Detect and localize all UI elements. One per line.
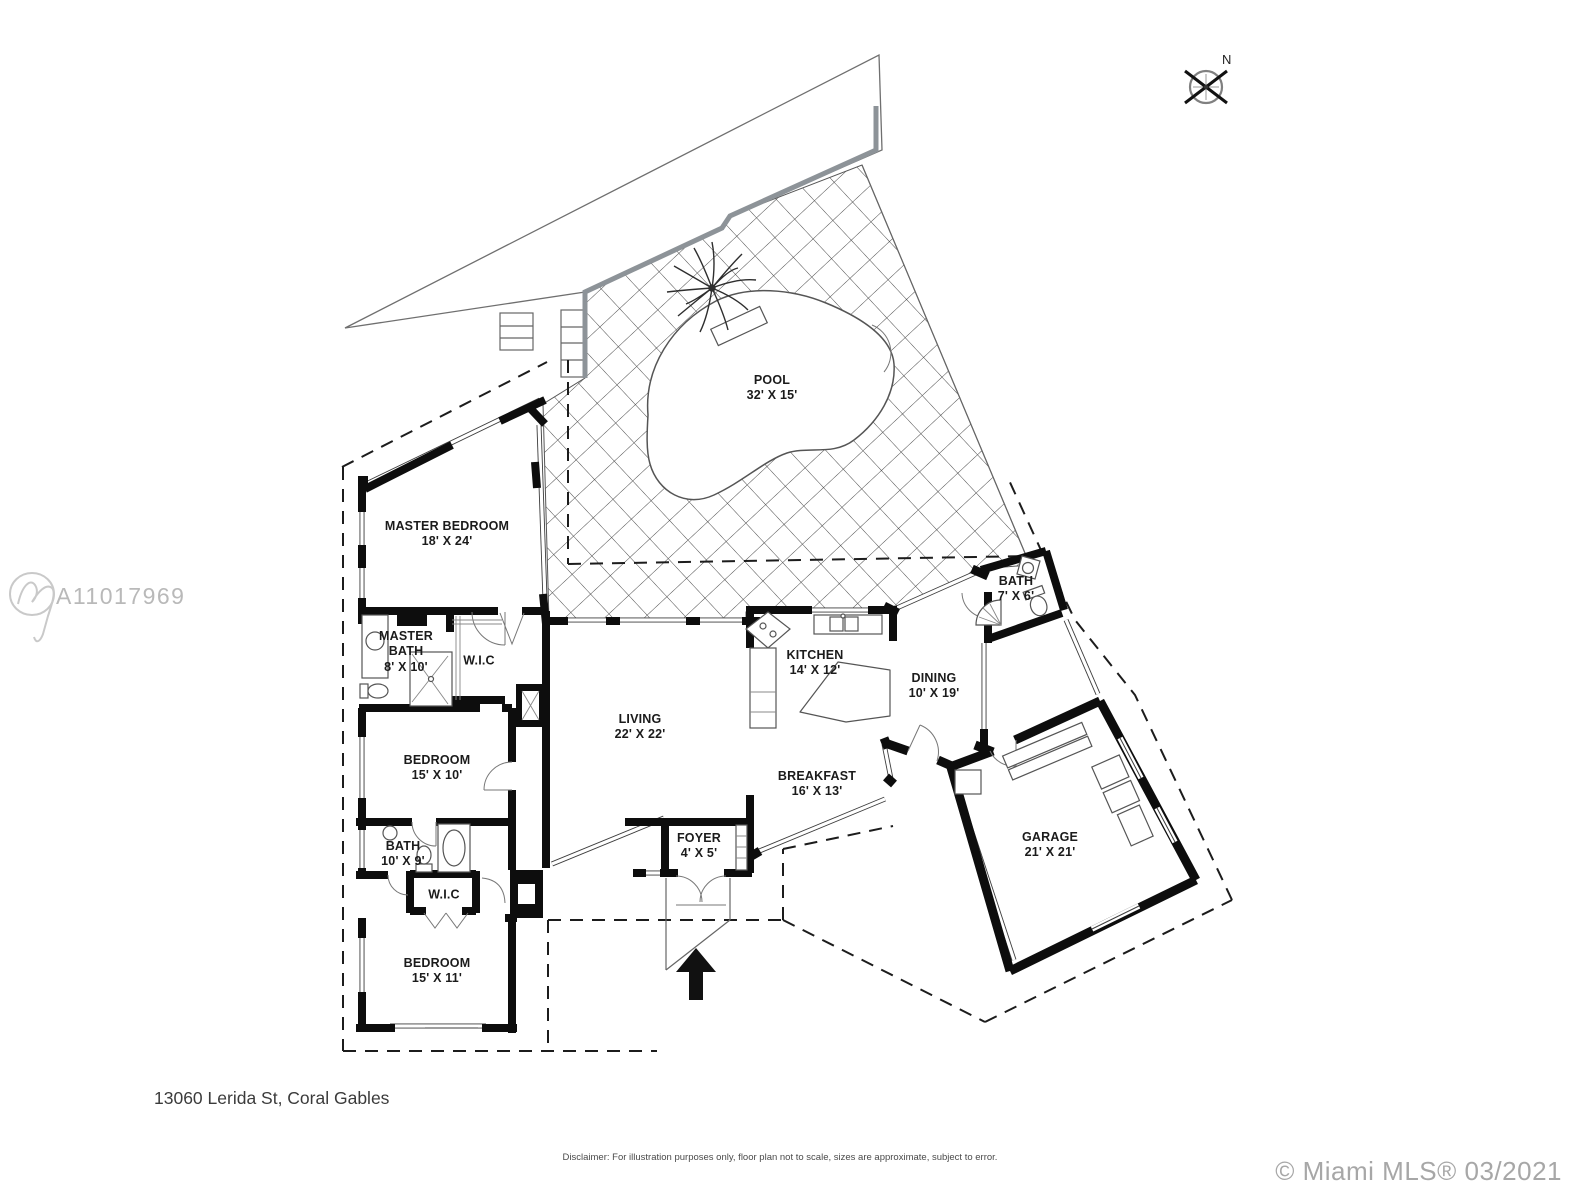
room-name: BEDROOM (404, 753, 471, 768)
room-name: W.I.C (463, 653, 495, 668)
room-name: KITCHEN (787, 648, 844, 663)
room-dims: 14' X 12' (787, 663, 844, 678)
room-name: BATH (381, 839, 425, 854)
room-label-living: LIVING22' X 22' (615, 712, 666, 743)
room-label-bedroom-mid: BEDROOM15' X 10' (404, 753, 471, 784)
room-dims: 10' X 19' (909, 686, 960, 701)
room-label-master-bedroom: MASTER BEDROOM18' X 24' (385, 519, 509, 550)
room-label-bath-hall: BATH10' X 9' (381, 839, 425, 870)
room-label-dining: DINING10' X 19' (909, 671, 960, 702)
mls-watermark-id: A11017969 (56, 583, 185, 610)
compass-north-label: N (1222, 52, 1231, 67)
room-dims: 7' X 6' (998, 589, 1035, 604)
room-label-foyer: FOYER4' X 5' (677, 831, 721, 862)
room-name: MASTER BEDROOM (385, 519, 509, 534)
floorplan-page: POOL32' X 15' MASTER BEDROOM18' X 24' MA… (0, 0, 1570, 1200)
room-dims: 18' X 24' (385, 534, 509, 549)
property-address: 13060 Lerida St, Coral Gables (154, 1088, 389, 1109)
floorplan-drawing (0, 0, 1570, 1200)
disclaimer-text: Disclaimer: For illustration purposes on… (563, 1152, 998, 1163)
room-name: LIVING (615, 712, 666, 727)
room-dims: 10' X 9' (381, 854, 425, 869)
room-dims: 15' X 10' (404, 768, 471, 783)
room-label-garage: GARAGE21' X 21' (1022, 830, 1078, 861)
room-name: BEDROOM (404, 956, 471, 971)
room-label-kitchen: KITCHEN14' X 12' (787, 648, 844, 679)
room-dims: 16' X 13' (778, 784, 856, 799)
room-label-breakfast: BREAKFAST16' X 13' (778, 769, 856, 800)
room-name: GARAGE (1022, 830, 1078, 845)
room-name: W.I.C (428, 887, 460, 902)
room-label-bedroom-front: BEDROOM15' X 11' (404, 956, 471, 987)
room-label-bath-guest: BATH7' X 6' (998, 574, 1035, 605)
room-dims: 22' X 22' (615, 727, 666, 742)
room-label-pool: POOL32' X 15' (747, 373, 798, 404)
room-name: FOYER (677, 831, 721, 846)
room-dims: 4' X 5' (677, 846, 721, 861)
copyright-text: © Miami MLS® 03/2021 (1275, 1156, 1562, 1187)
room-name: MASTER BATH (368, 629, 444, 660)
room-name: DINING (909, 671, 960, 686)
room-label-wic-hall: W.I.C (428, 887, 460, 902)
room-dims: 15' X 11' (404, 971, 471, 986)
room-name: BATH (998, 574, 1035, 589)
room-dims: 21' X 21' (1022, 845, 1078, 860)
room-name: BREAKFAST (778, 769, 856, 784)
room-label-master-bath: MASTER BATH8' X 10' (368, 629, 444, 675)
room-label-wic-master: W.I.C (463, 653, 495, 668)
room-name: POOL (747, 373, 798, 388)
room-dims: 32' X 15' (747, 388, 798, 403)
room-dims: 8' X 10' (368, 660, 444, 675)
